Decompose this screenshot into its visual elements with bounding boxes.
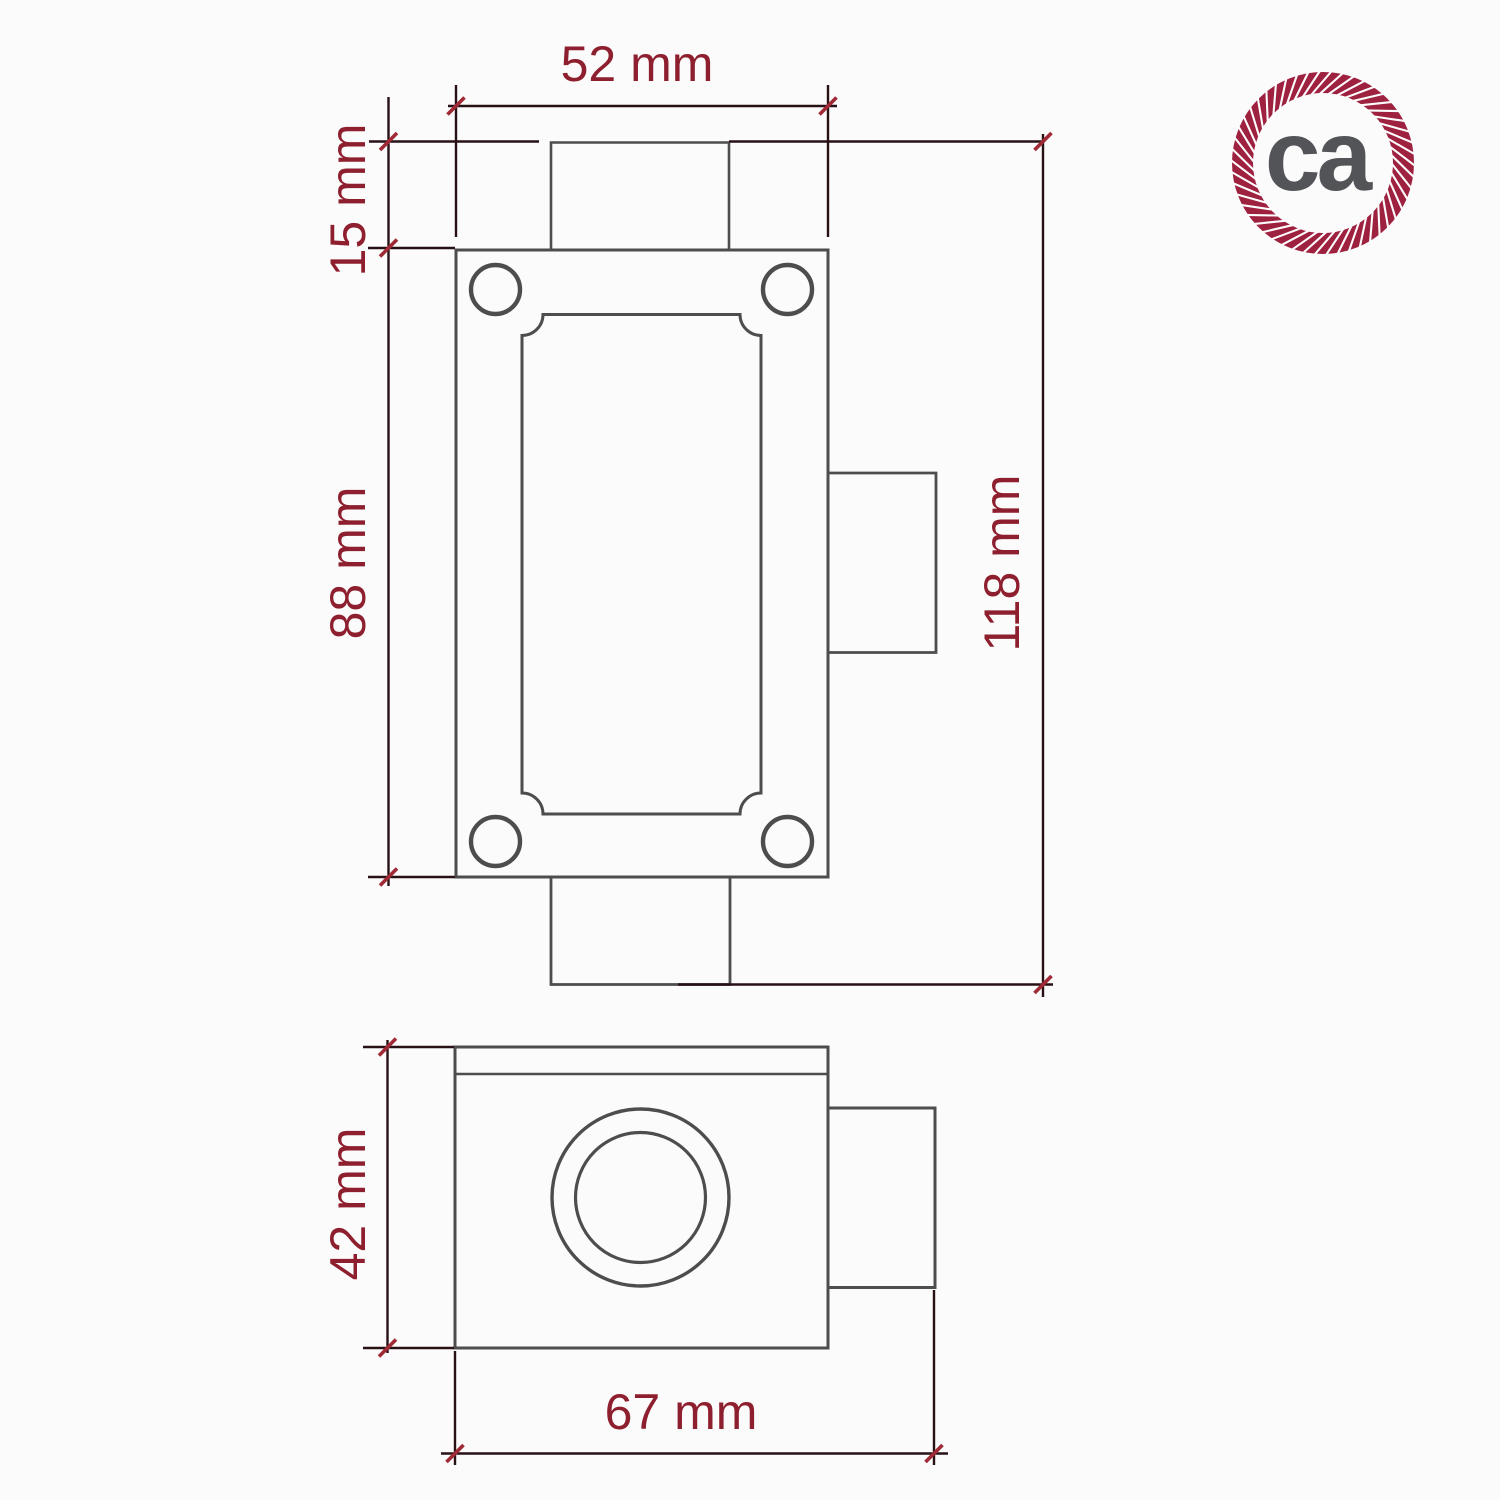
svg-text:42 mm: 42 mm [320, 1128, 376, 1281]
svg-text:67 mm: 67 mm [605, 1384, 758, 1440]
svg-text:ca: ca [1265, 100, 1374, 212]
svg-text:52 mm: 52 mm [561, 36, 714, 92]
svg-text:88 mm: 88 mm [320, 487, 376, 640]
svg-text:15 mm: 15 mm [320, 124, 376, 277]
svg-text:118 mm: 118 mm [974, 475, 1030, 652]
